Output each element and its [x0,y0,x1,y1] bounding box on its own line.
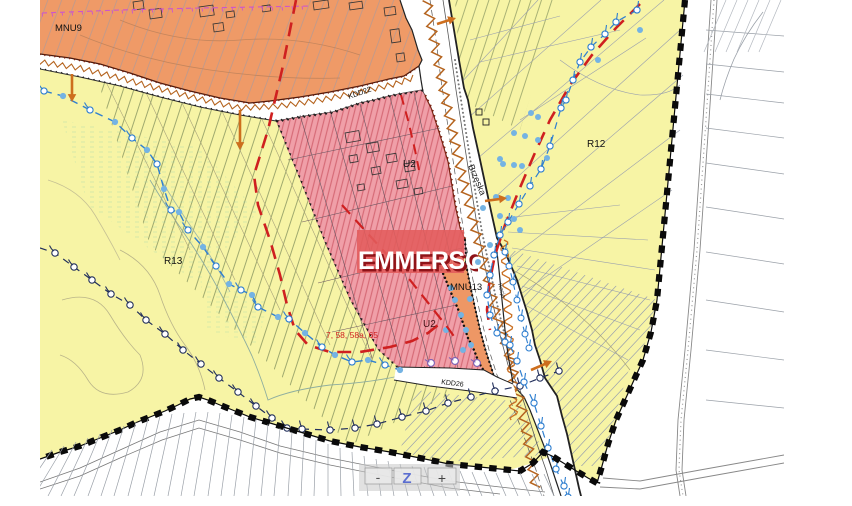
svg-text:Z: Z [402,470,411,487]
svg-text:U2: U2 [403,159,416,170]
svg-text:MNU9: MNU9 [55,23,82,34]
svg-text:U2: U2 [423,319,436,330]
svg-text:7, 58, 58a, 65: 7, 58, 58a, 65 [326,330,378,340]
svg-text:-: - [376,469,381,485]
svg-text:+: + [438,470,446,486]
svg-text:R12: R12 [587,139,606,150]
svg-text:R13: R13 [164,256,183,267]
svg-text:MNU13: MNU13 [450,282,482,293]
